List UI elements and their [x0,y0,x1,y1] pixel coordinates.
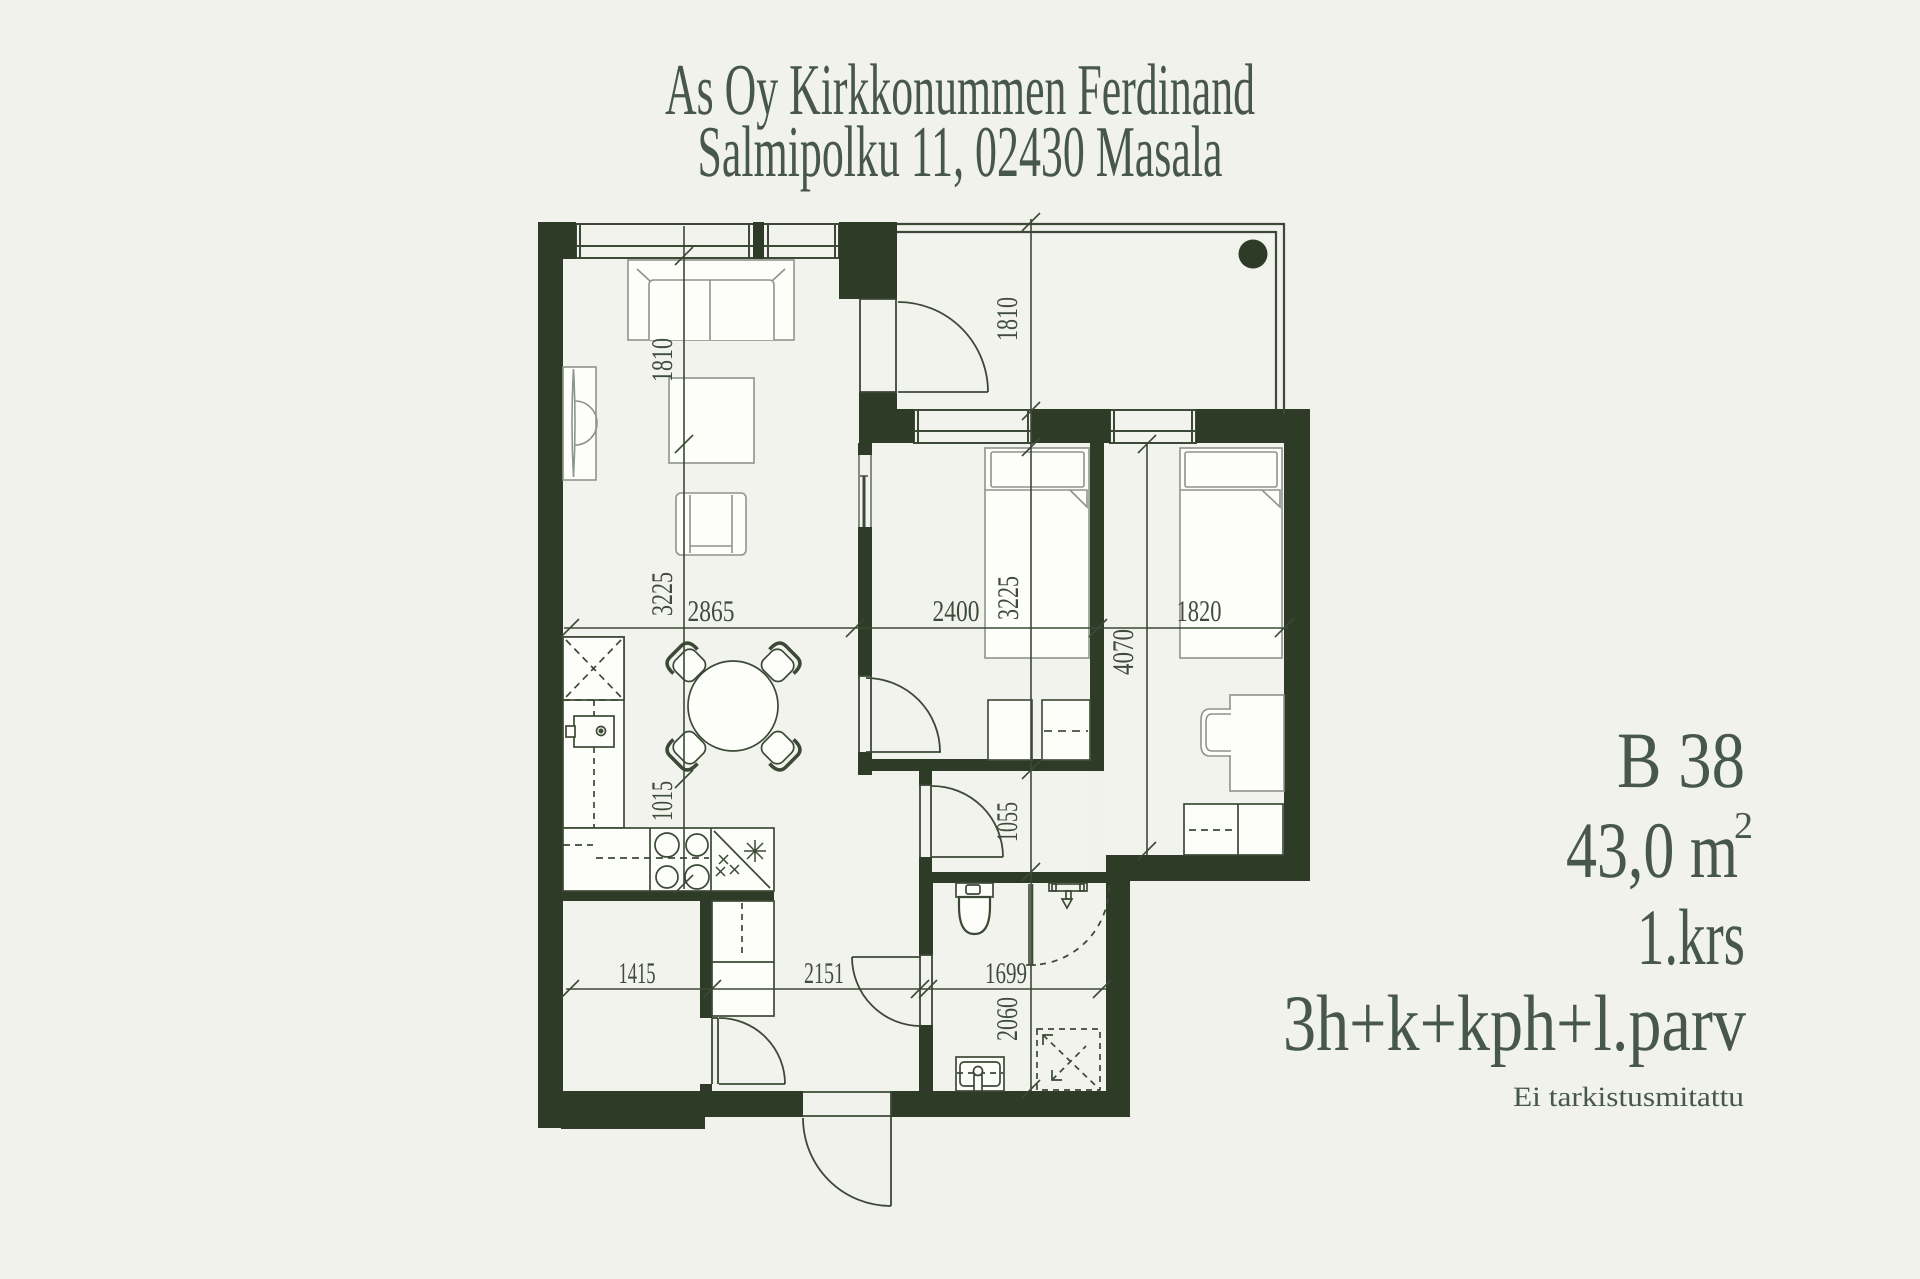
svg-text:2: 2 [1734,805,1753,847]
svg-text:1015: 1015 [646,781,679,821]
svg-text:2865: 2865 [688,595,735,628]
svg-text:1.krs: 1.krs [1637,894,1745,982]
svg-text:3225: 3225 [992,576,1025,620]
svg-text:Salmipolku 11, 02430 Masala: Salmipolku 11, 02430 Masala [698,111,1223,192]
svg-text:1699: 1699 [985,957,1027,990]
svg-text:1810: 1810 [991,297,1024,341]
svg-text:2060: 2060 [991,997,1024,1041]
svg-text:1820: 1820 [1177,595,1222,628]
svg-text:1810: 1810 [646,338,679,382]
svg-text:3h+k+kph+l.parv: 3h+k+kph+l.parv [1283,980,1746,1068]
svg-text:43,0 m: 43,0 m [1566,807,1738,895]
svg-text:1415: 1415 [619,957,656,990]
svg-text:1055: 1055 [991,802,1024,842]
svg-text:3225: 3225 [646,572,679,616]
svg-text:4070: 4070 [1107,629,1140,675]
svg-text:B 38: B 38 [1617,717,1745,805]
svg-text:Ei tarkistusmitattu: Ei tarkistusmitattu [1513,1082,1744,1113]
svg-text:2151: 2151 [804,957,844,990]
svg-text:2400: 2400 [933,595,980,628]
